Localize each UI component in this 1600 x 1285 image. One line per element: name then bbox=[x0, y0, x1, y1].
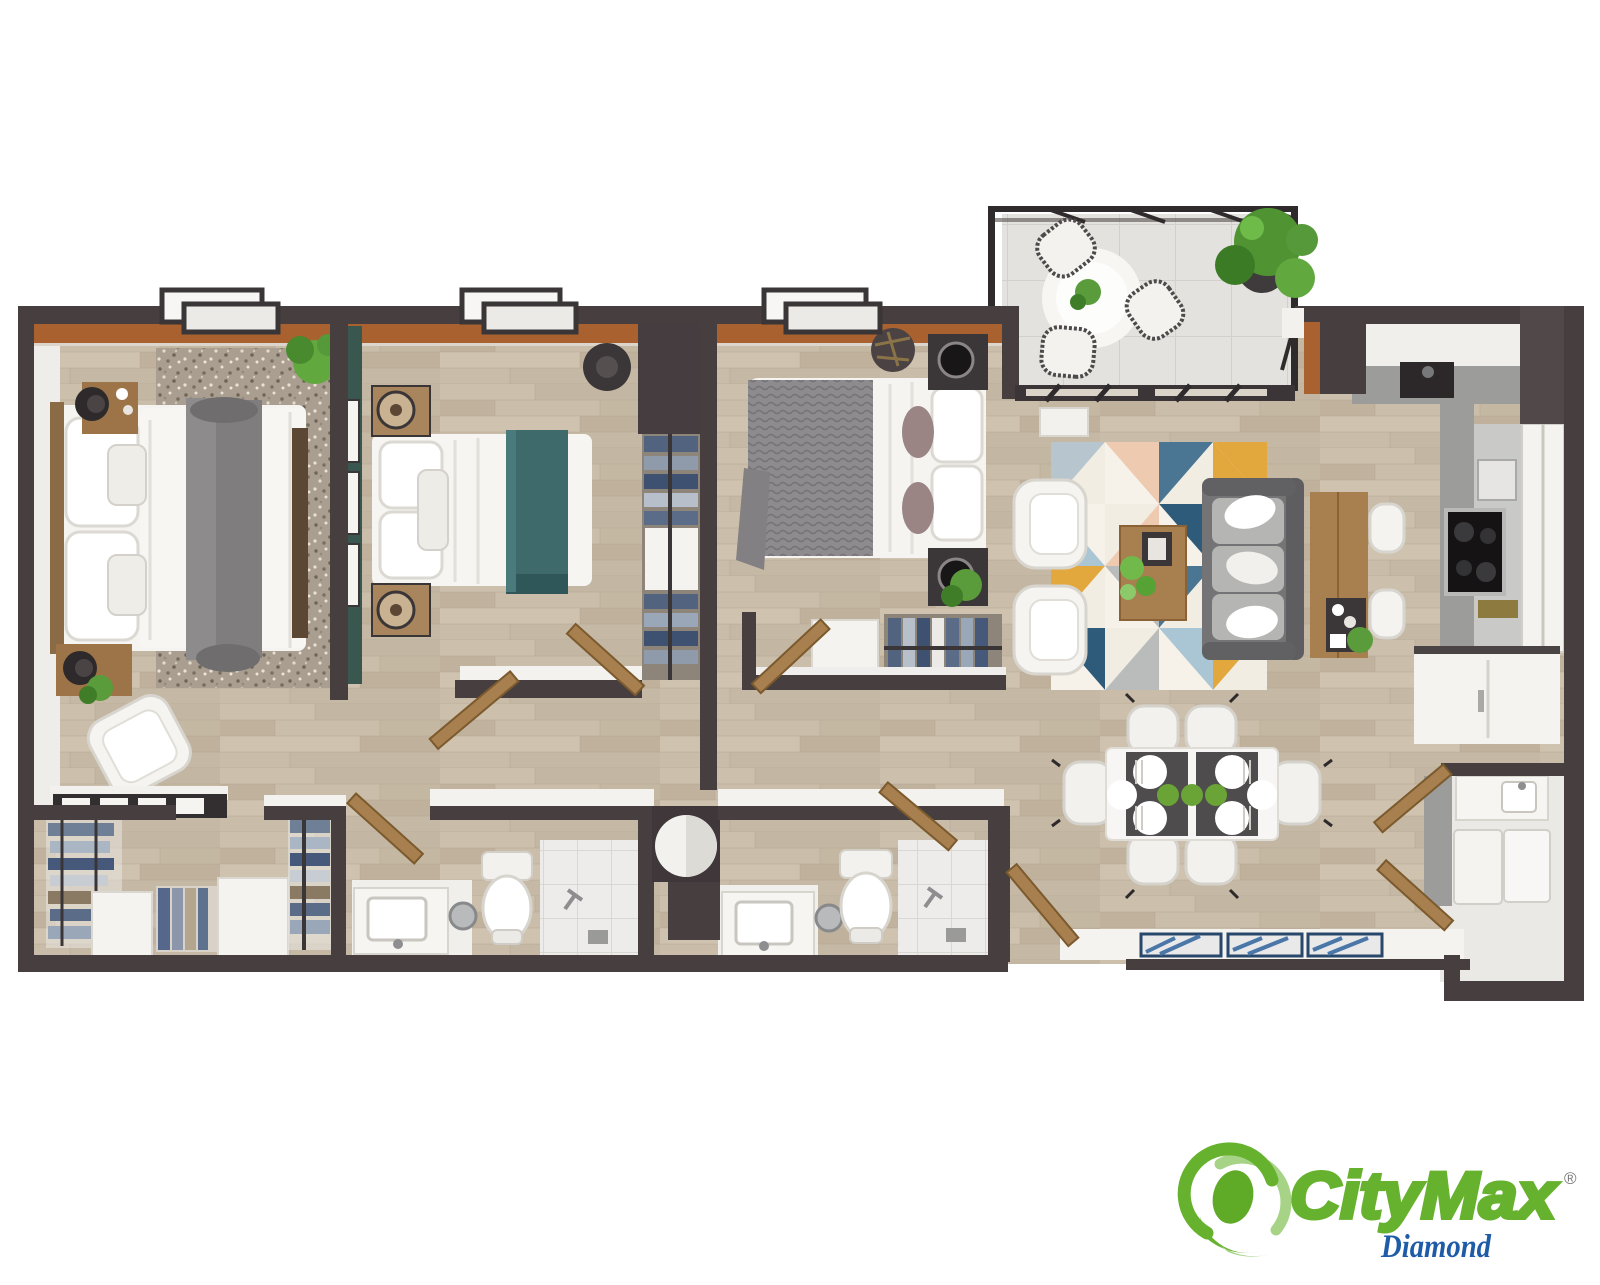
svg-text:Diamond: Diamond bbox=[1380, 1229, 1491, 1265]
svg-text:CityMax: CityMax bbox=[1290, 1158, 1558, 1232]
svg-text:®: ® bbox=[1564, 1169, 1577, 1188]
